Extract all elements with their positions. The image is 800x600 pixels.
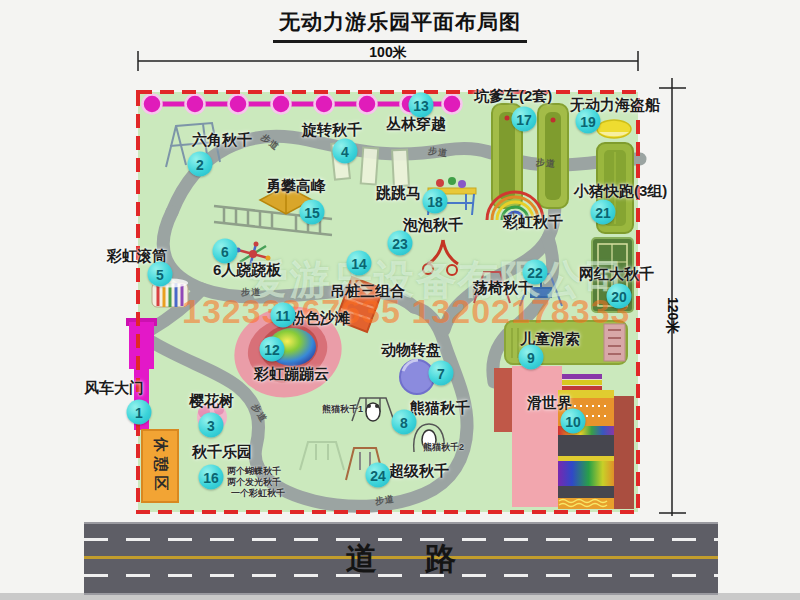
- marker-21: 21: [591, 200, 616, 225]
- trail-label: 步道: [427, 145, 449, 161]
- marker-18: 18: [423, 189, 448, 214]
- marker-16: 16: [199, 465, 224, 490]
- label-swing-park: 秋千乐园: [192, 443, 252, 462]
- page-title-wrap: 无动力游乐园平面布局图: [0, 8, 800, 43]
- label-seesaw: 6人跷跷板: [213, 261, 281, 280]
- park-layout-map: 无动力游乐园平面布局图 100米 120米 爱游乐设备有限公司 13233867…: [0, 0, 800, 600]
- marker-17: 17: [512, 107, 537, 132]
- label-net-swing: 网红大秋千: [579, 265, 654, 284]
- marker-12: 12: [260, 337, 285, 362]
- width-dimension-label: 100米: [0, 44, 776, 62]
- marker-23: 23: [388, 231, 413, 256]
- label-pit-cars: 坑爹车(2套): [474, 87, 552, 106]
- marker-15: 15: [300, 200, 325, 225]
- label-rainbow-cloud: 彩虹蹦蹦云: [254, 365, 329, 384]
- label-rotary-swing: 旋转秋千: [302, 121, 362, 140]
- label-animal-turntable: 动物转盘: [381, 341, 441, 360]
- marker-4: 4: [333, 139, 358, 164]
- marker-24: 24: [366, 463, 391, 488]
- marker-7: 7: [429, 361, 454, 386]
- label-climbing-peak: 勇攀高峰: [266, 177, 326, 196]
- marker-1: 1: [127, 400, 152, 425]
- label-cherry-tree: 樱花树: [189, 392, 234, 411]
- marker-22: 22: [523, 260, 548, 285]
- marker-8: 8: [392, 410, 417, 435]
- marker-13: 13: [409, 93, 434, 118]
- label-piggy-run: 小猪快跑(3组): [574, 182, 667, 201]
- marker-3: 3: [199, 413, 224, 438]
- label-windmill-gate: 风车大门: [84, 379, 144, 398]
- label-panda-swing: 熊猫秋千: [410, 399, 470, 418]
- page-title: 无动力游乐园平面布局图: [273, 8, 527, 43]
- trail-label: 步道: [241, 286, 261, 299]
- marker-20: 20: [607, 284, 632, 309]
- marker-5: 5: [148, 262, 173, 287]
- label-jumping-horse: 跳跳马: [376, 184, 421, 203]
- trail-label: 步道: [374, 493, 396, 509]
- label-pink-beach: 粉色沙滩: [290, 309, 350, 328]
- label-rainbow-swing: 彩虹秋千: [503, 213, 563, 232]
- road: 道 路: [84, 522, 718, 595]
- label-bubble-swing: 泡泡秋千: [403, 216, 463, 235]
- height-dimension-label: 120米: [663, 297, 681, 334]
- panda-swing-1-label: 熊猫秋千1: [322, 403, 363, 416]
- label-hanging-piles: 吊桩三组合: [330, 282, 405, 301]
- marker-10: 10: [561, 409, 586, 434]
- rest-area-label: 休憩区: [151, 438, 170, 495]
- label-hexagon-swing: 六角秋千: [192, 131, 252, 150]
- label-jungle-crossing: 丛林穿越: [386, 115, 446, 134]
- trail-label: 步道: [535, 156, 556, 171]
- marker-9: 9: [519, 345, 544, 370]
- swing-note-3: 一个彩虹秋千: [231, 487, 285, 500]
- marker-6: 6: [213, 239, 238, 264]
- marker-19: 19: [576, 109, 601, 134]
- label-chair-swing: 荡椅秋千: [473, 279, 533, 298]
- marker-11: 11: [271, 303, 296, 328]
- label-super-swing: 超级秋千: [389, 462, 449, 481]
- road-label: 道 路: [84, 524, 718, 593]
- panda-swing-2-label: 熊猫秋千2: [423, 441, 464, 454]
- marker-14: 14: [347, 251, 372, 276]
- pirate-ship-icon: [597, 120, 631, 138]
- marker-2: 2: [188, 152, 213, 177]
